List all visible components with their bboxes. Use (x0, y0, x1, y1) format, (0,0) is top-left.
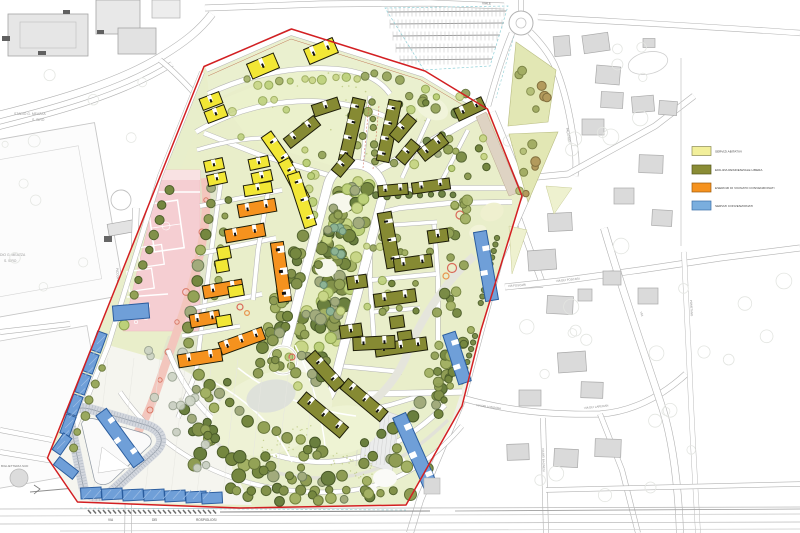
svg-text:S. SIRO: S. SIRO (32, 118, 45, 122)
svg-text:STADIO G. MEAZZA: STADIO G. MEAZZA (14, 112, 46, 116)
svg-text:VIA: VIA (108, 518, 114, 522)
svg-text:ROSPIGLIOSI: ROSPIGLIOSI (196, 518, 217, 522)
svg-text:VIALE: VIALE (482, 2, 491, 6)
svg-text:SERVIZI CONVENZIONATI: SERVIZI CONVENZIONATI (715, 204, 753, 208)
svg-text:VIA DEI BAGNESI: VIA DEI BAGNESI (541, 448, 546, 472)
svg-text:SERVIZI ABITATIVI: SERVIZI ABITATIVI (715, 150, 742, 154)
svg-text:BIGLIETTERIA SUD: BIGLIETTERIA SUD (1, 464, 29, 468)
svg-text:DEI: DEI (152, 518, 157, 522)
svg-text:DIO G. MEAZZA: DIO G. MEAZZA (0, 253, 26, 257)
svg-text:EDILIZIA RESIDENZIALE LIBERA: EDILIZIA RESIDENZIALE LIBERA (715, 168, 763, 172)
svg-text:ESERCIZI DI VICINATO CONVENZIO: ESERCIZI DI VICINATO CONVENZIONATI (715, 186, 775, 190)
